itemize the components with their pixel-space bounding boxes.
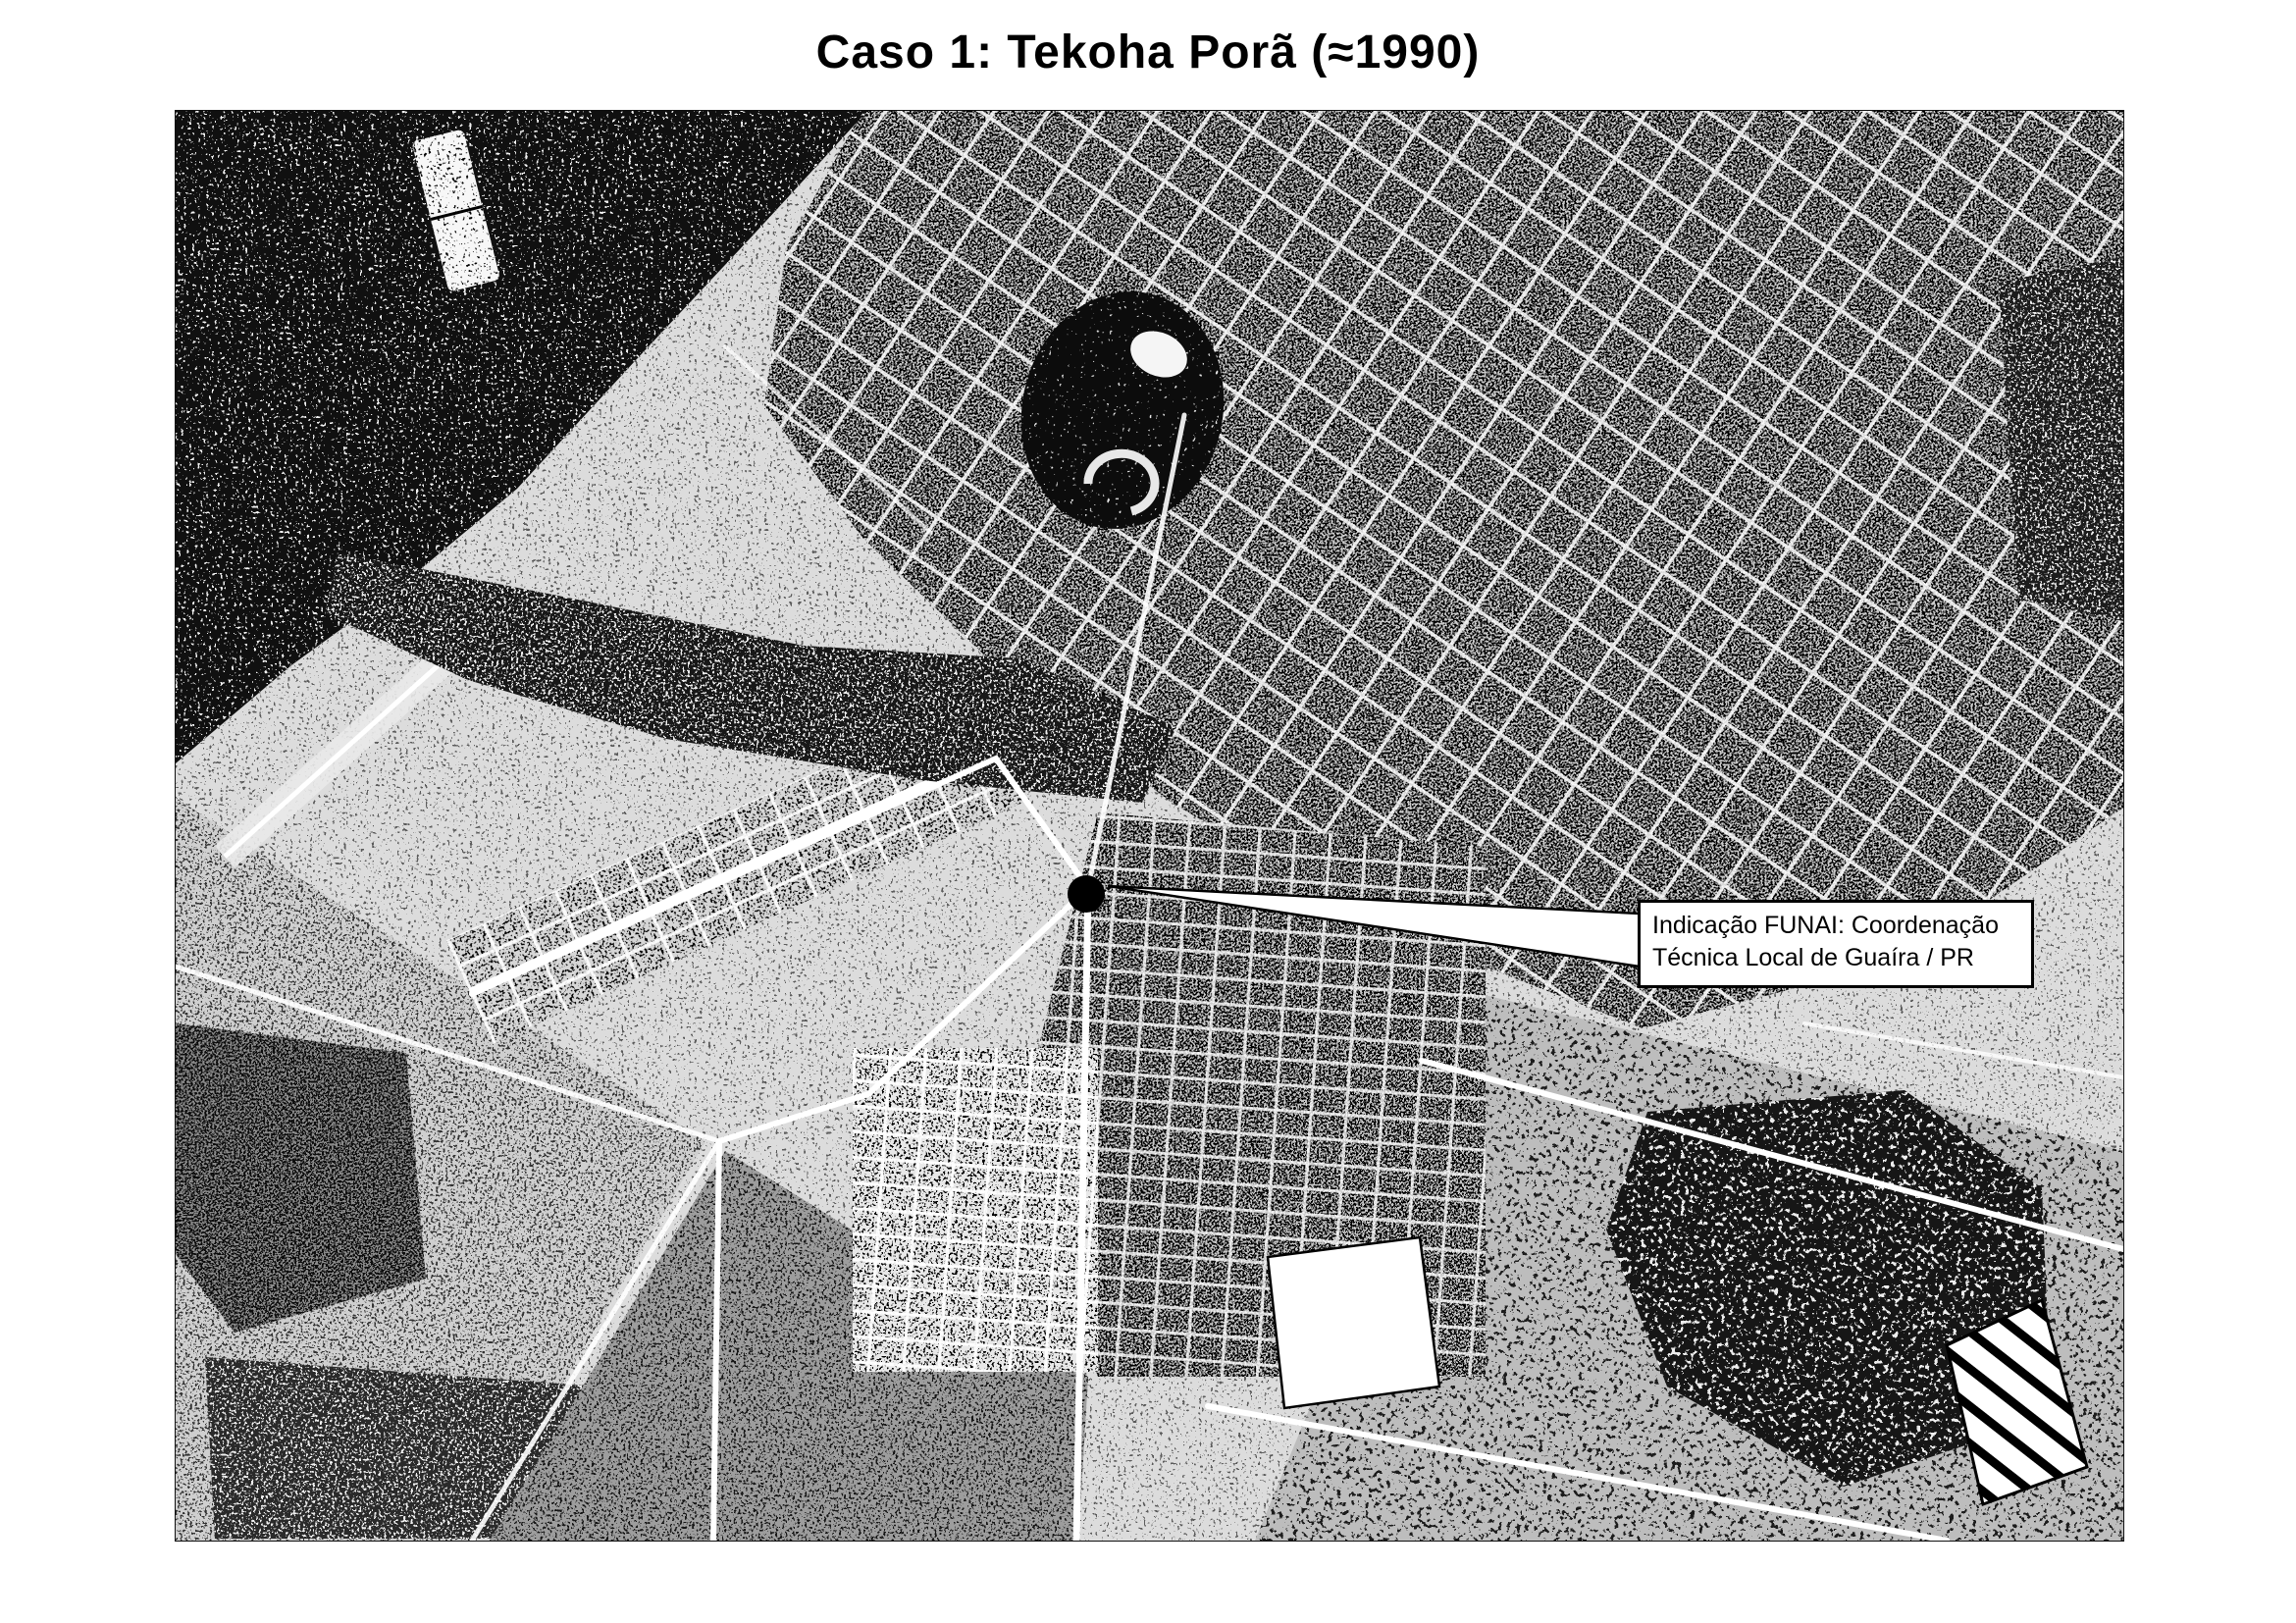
annotation-line-2: Técnica Local de Guaíra / PR [1652, 942, 2021, 974]
annotation-line-1: Indicação FUNAI: Coordenação [1652, 910, 2021, 942]
funai-annotation-box: Indicação FUNAI: Coordenação Técnica Loc… [1638, 900, 2034, 988]
aerial-photograph: Indicação FUNAI: Coordenação Técnica Loc… [175, 110, 2124, 1542]
figure-title: Caso 1: Tekoha Porã (≈1990) [0, 26, 2296, 79]
white-parcel [1268, 1237, 1439, 1408]
location-marker-dot [1068, 875, 1105, 913]
aerial-photograph-image [176, 111, 2123, 1541]
